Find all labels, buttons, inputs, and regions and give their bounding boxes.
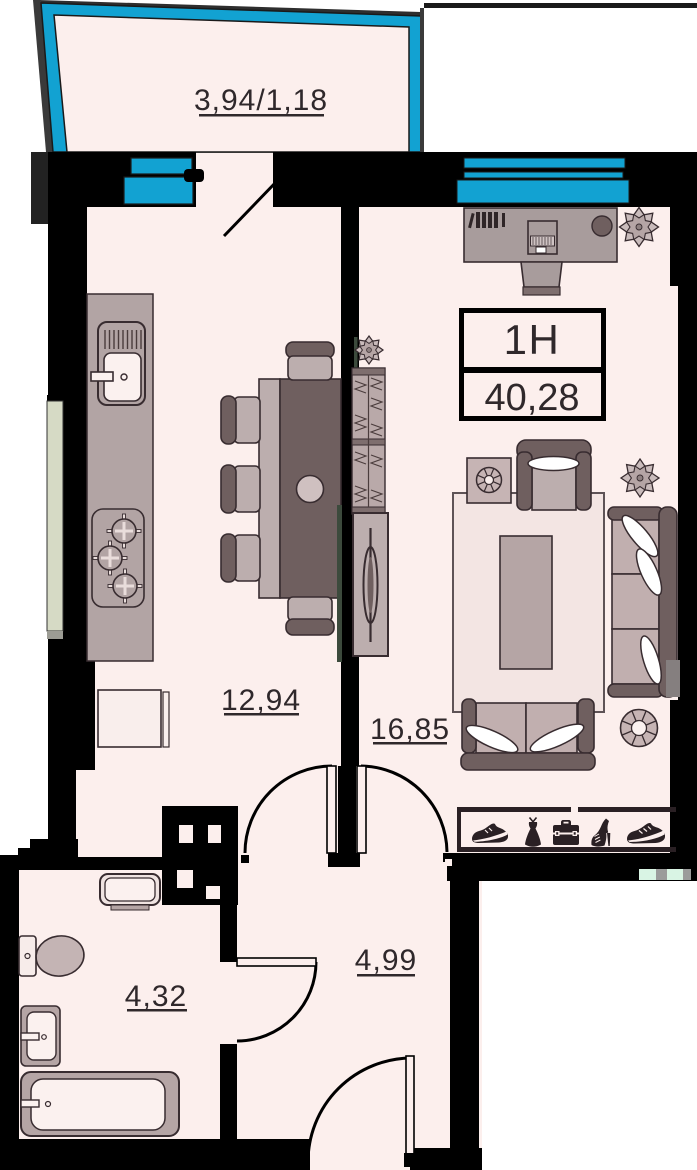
svg-text:1H: 1H bbox=[504, 316, 561, 363]
svg-text:4,32: 4,32 bbox=[125, 980, 187, 1013]
svg-text:4,99: 4,99 bbox=[355, 944, 417, 977]
svg-text:16,85: 16,85 bbox=[370, 713, 450, 746]
svg-text:40,28: 40,28 bbox=[484, 377, 579, 419]
svg-text:12,94: 12,94 bbox=[221, 684, 301, 717]
svg-text:3,94/1,18: 3,94/1,18 bbox=[194, 84, 328, 117]
